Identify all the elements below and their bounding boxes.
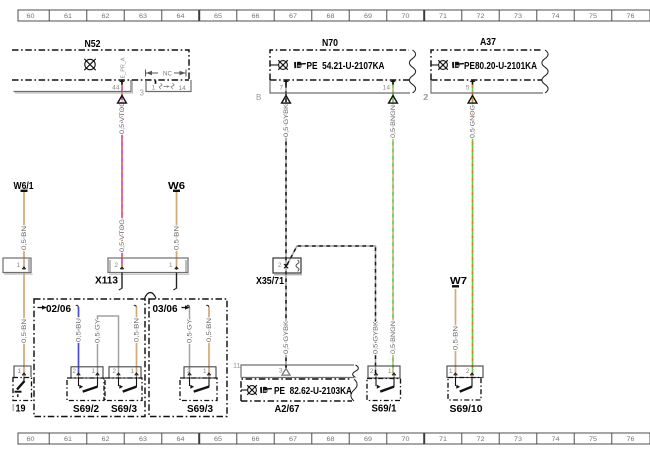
svg-text:S69/3: S69/3 xyxy=(111,403,137,415)
svg-text:71: 71 xyxy=(439,13,448,20)
svg-text:0,5 GYBK: 0,5 GYBK xyxy=(373,321,380,354)
svg-text:2: 2 xyxy=(278,262,282,269)
svg-text:67: 67 xyxy=(289,436,298,443)
svg-text:66: 66 xyxy=(252,13,261,20)
svg-text:62: 62 xyxy=(102,436,111,443)
svg-text:0,5 BN: 0,5 BN xyxy=(174,226,181,250)
svg-text:A37: A37 xyxy=(480,36,496,48)
svg-text:0,5 GYBK: 0,5 GYBK xyxy=(283,104,290,137)
svg-text:73: 73 xyxy=(514,436,523,443)
svg-text:2: 2 xyxy=(114,262,118,269)
svg-text:2: 2 xyxy=(423,93,428,102)
svg-text:75: 75 xyxy=(589,436,598,443)
svg-text:66: 66 xyxy=(252,436,261,443)
svg-text:1: 1 xyxy=(449,368,453,375)
svg-text:61: 61 xyxy=(64,13,73,20)
svg-text:71: 71 xyxy=(439,436,448,443)
svg-text:0,5 GYBK: 0,5 GYBK xyxy=(283,321,290,354)
svg-text:1: 1 xyxy=(169,262,173,269)
svg-text:0,5 GNOG: 0,5 GNOG xyxy=(470,105,477,138)
svg-text:70: 70 xyxy=(402,436,411,443)
svg-text:X35/71: X35/71 xyxy=(256,275,284,287)
svg-text:3: 3 xyxy=(279,368,283,375)
svg-text:63: 63 xyxy=(139,13,148,20)
svg-text:68: 68 xyxy=(327,13,336,20)
svg-text:B: B xyxy=(256,93,261,102)
svg-text:0,5 GY: 0,5 GY xyxy=(187,318,194,343)
svg-text:S69/1: S69/1 xyxy=(372,403,397,415)
svg-text:3: 3 xyxy=(140,89,145,98)
svg-text:N70: N70 xyxy=(322,37,338,49)
svg-text:62: 62 xyxy=(102,13,111,20)
svg-text:02/06: 02/06 xyxy=(46,303,71,315)
svg-text:03/06: 03/06 xyxy=(153,303,178,315)
svg-text:5: 5 xyxy=(466,85,470,92)
svg-text:72: 72 xyxy=(477,13,486,20)
svg-text:76: 76 xyxy=(627,13,636,20)
svg-text:1: 1 xyxy=(91,368,95,375)
svg-text:0,5 BN: 0,5 BN xyxy=(21,319,28,343)
svg-text:73: 73 xyxy=(514,13,523,20)
svg-text:0,5 VTOG: 0,5 VTOG xyxy=(119,101,126,134)
svg-text:75: 75 xyxy=(589,13,598,20)
svg-text:NC: NC xyxy=(163,71,172,78)
svg-text:65: 65 xyxy=(214,13,223,20)
svg-text:N52: N52 xyxy=(85,38,101,50)
svg-text:67: 67 xyxy=(289,13,298,20)
svg-text:PE80.20-U-2101KA: PE80.20-U-2101KA xyxy=(464,60,537,72)
svg-text:E_PR_A: E_PR_A xyxy=(121,57,127,78)
svg-text:1: 1 xyxy=(17,368,21,375)
svg-text:60: 60 xyxy=(27,13,36,20)
svg-text:2: 2 xyxy=(72,368,76,375)
svg-text:70: 70 xyxy=(402,13,411,20)
svg-text:7: 7 xyxy=(279,85,283,92)
svg-text:11: 11 xyxy=(233,361,241,370)
svg-text:S69/3: S69/3 xyxy=(187,403,213,415)
svg-text:2: 2 xyxy=(466,368,470,375)
svg-text:0,5 BN: 0,5 BN xyxy=(21,226,28,250)
svg-text:A2/67: A2/67 xyxy=(275,403,300,415)
svg-text:PE 82.62-U-2103KA: PE 82.62-U-2103KA xyxy=(274,385,352,397)
svg-text:64: 64 xyxy=(177,13,186,20)
svg-text:68: 68 xyxy=(327,436,336,443)
svg-text:0,5 VTOG: 0,5 VTOG xyxy=(119,219,126,252)
svg-text:60: 60 xyxy=(27,436,36,443)
svg-text:0,5 BNGN: 0,5 BNGN xyxy=(390,105,397,138)
svg-text:14: 14 xyxy=(179,85,187,92)
svg-text:63: 63 xyxy=(139,436,148,443)
svg-text:19: 19 xyxy=(16,403,26,415)
svg-text:69: 69 xyxy=(364,13,373,20)
svg-text:1: 1 xyxy=(203,368,207,375)
svg-text:1: 1 xyxy=(130,368,134,375)
svg-text:2: 2 xyxy=(112,368,116,375)
svg-text:PE 54.21-U-2107KA: PE 54.21-U-2107KA xyxy=(307,60,385,72)
svg-text:74: 74 xyxy=(552,436,561,443)
svg-text:0,5 BNGN: 0,5 BNGN xyxy=(390,321,397,354)
svg-text:76: 76 xyxy=(627,436,636,443)
svg-text:64: 64 xyxy=(177,436,186,443)
svg-text:S69/2: S69/2 xyxy=(73,403,99,415)
svg-text:0,5 BN: 0,5 BN xyxy=(134,318,141,342)
svg-text:74: 74 xyxy=(552,13,561,20)
svg-text:0,5 BN: 0,5 BN xyxy=(206,318,213,342)
svg-text:0,5 GY: 0,5 GY xyxy=(95,318,102,343)
svg-text:0,5 BN: 0,5 BN xyxy=(453,326,460,350)
svg-text:65: 65 xyxy=(214,436,223,443)
svg-text:61: 61 xyxy=(64,436,73,443)
svg-text:72: 72 xyxy=(477,436,486,443)
svg-text:1: 1 xyxy=(16,262,20,269)
svg-text:44: 44 xyxy=(112,85,120,92)
svg-text:1: 1 xyxy=(152,85,156,92)
svg-text:14: 14 xyxy=(383,85,391,92)
svg-text:0,5 BU: 0,5 BU xyxy=(76,318,83,342)
svg-text:1: 1 xyxy=(388,368,392,375)
svg-text:X113: X113 xyxy=(95,275,118,287)
svg-text:S69/10: S69/10 xyxy=(450,403,483,415)
svg-text:69: 69 xyxy=(364,436,373,443)
svg-text:2: 2 xyxy=(370,368,374,375)
